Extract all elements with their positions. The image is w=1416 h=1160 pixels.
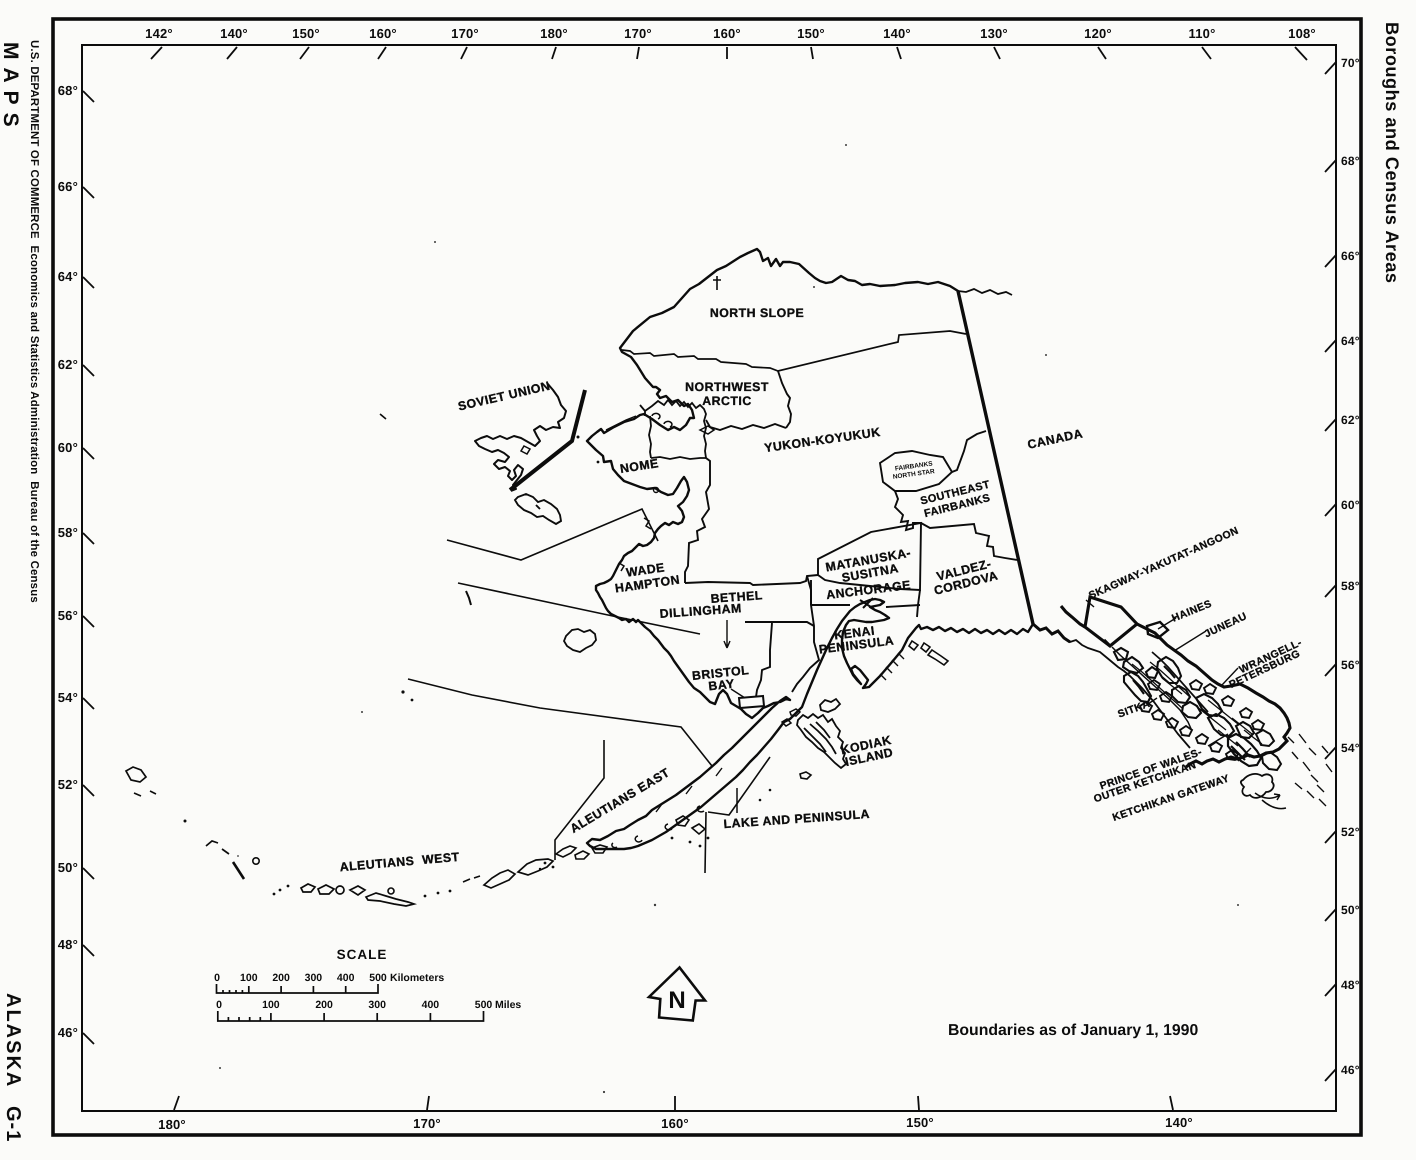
svg-text:62°: 62°	[1341, 413, 1360, 427]
svg-text:110°: 110°	[1189, 26, 1216, 41]
svg-text:108°: 108°	[1288, 26, 1316, 41]
svg-text:N: N	[668, 987, 685, 1014]
svg-text:MAPS: MAPS	[0, 42, 22, 135]
svg-text:140°: 140°	[883, 26, 911, 41]
svg-text:170°: 170°	[413, 1116, 441, 1131]
svg-text:50°: 50°	[1341, 903, 1360, 917]
svg-text:52°: 52°	[58, 777, 78, 792]
svg-text:62°: 62°	[58, 357, 78, 372]
svg-text:58°: 58°	[58, 525, 78, 540]
svg-text:56°: 56°	[1341, 658, 1360, 672]
svg-text:ARCTIC: ARCTIC	[702, 394, 751, 408]
svg-text:160°: 160°	[713, 26, 741, 41]
svg-text:160°: 160°	[661, 1116, 689, 1131]
svg-text:70°: 70°	[1341, 56, 1360, 70]
svg-text:Boundaries as of January 1, 19: Boundaries as of January 1, 1990	[948, 1022, 1198, 1039]
svg-text:60°: 60°	[58, 440, 78, 455]
svg-text:52°: 52°	[1341, 825, 1360, 839]
svg-text:68°: 68°	[1341, 154, 1360, 168]
svg-text:G-1: G-1	[2, 1106, 24, 1142]
svg-text:BAY: BAY	[708, 677, 736, 694]
svg-text:46°: 46°	[58, 1025, 78, 1040]
svg-text:140°: 140°	[1165, 1115, 1193, 1130]
svg-text:64°: 64°	[1341, 334, 1360, 348]
svg-text:150°: 150°	[797, 26, 825, 41]
svg-text:SCALE: SCALE	[337, 947, 388, 962]
svg-text:180°: 180°	[540, 26, 568, 41]
svg-text:300: 300	[305, 972, 323, 984]
svg-text:500: 500	[475, 999, 493, 1011]
svg-text:100: 100	[240, 972, 258, 984]
svg-text:400: 400	[337, 972, 355, 984]
svg-text:66°: 66°	[58, 179, 78, 194]
svg-text:100: 100	[262, 999, 280, 1011]
svg-text:170°: 170°	[451, 26, 479, 41]
svg-text:Boroughs and Census Areas: Boroughs and Census Areas	[1382, 22, 1402, 283]
svg-text:66°: 66°	[1341, 249, 1360, 263]
svg-text:300: 300	[368, 999, 386, 1011]
svg-text:130°: 130°	[980, 26, 1008, 41]
svg-text:56°: 56°	[58, 608, 78, 623]
svg-text:NORTHWEST: NORTHWEST	[685, 380, 769, 394]
svg-text:150°: 150°	[292, 26, 320, 41]
svg-text:Miles: Miles	[495, 999, 521, 1011]
svg-text:0: 0	[214, 972, 220, 984]
svg-text:54°: 54°	[1341, 741, 1360, 755]
svg-text:54°: 54°	[58, 690, 78, 705]
svg-text:120°: 120°	[1084, 26, 1112, 41]
svg-text:150°: 150°	[906, 1115, 934, 1130]
svg-text:400: 400	[422, 999, 440, 1011]
svg-text:50°: 50°	[58, 860, 78, 875]
svg-text:160°: 160°	[369, 26, 397, 41]
svg-text:68°: 68°	[58, 83, 78, 98]
svg-text:ALASKA: ALASKA	[2, 993, 24, 1088]
svg-text:64°: 64°	[58, 269, 78, 284]
svg-text:200: 200	[272, 972, 290, 984]
svg-text:140°: 140°	[220, 26, 248, 41]
svg-text:180°: 180°	[158, 1117, 186, 1132]
svg-text:60°: 60°	[1341, 498, 1360, 512]
svg-text:48°: 48°	[1341, 978, 1360, 992]
svg-text:0: 0	[216, 999, 222, 1011]
svg-text:170°: 170°	[624, 26, 652, 41]
svg-text:48°: 48°	[58, 937, 78, 952]
svg-text:58°: 58°	[1341, 579, 1360, 593]
svg-text:200: 200	[315, 999, 333, 1011]
svg-text:NORTH SLOPE: NORTH SLOPE	[710, 306, 804, 320]
svg-text:46°: 46°	[1341, 1063, 1360, 1077]
svg-text:142°: 142°	[145, 26, 173, 41]
svg-text:500: 500	[369, 972, 387, 984]
svg-text:U.S. DEPARTMENT OF COMMERCE E: U.S. DEPARTMENT OF COMMERCE Economics an…	[28, 40, 40, 603]
svg-text:Kilometers: Kilometers	[390, 972, 444, 984]
